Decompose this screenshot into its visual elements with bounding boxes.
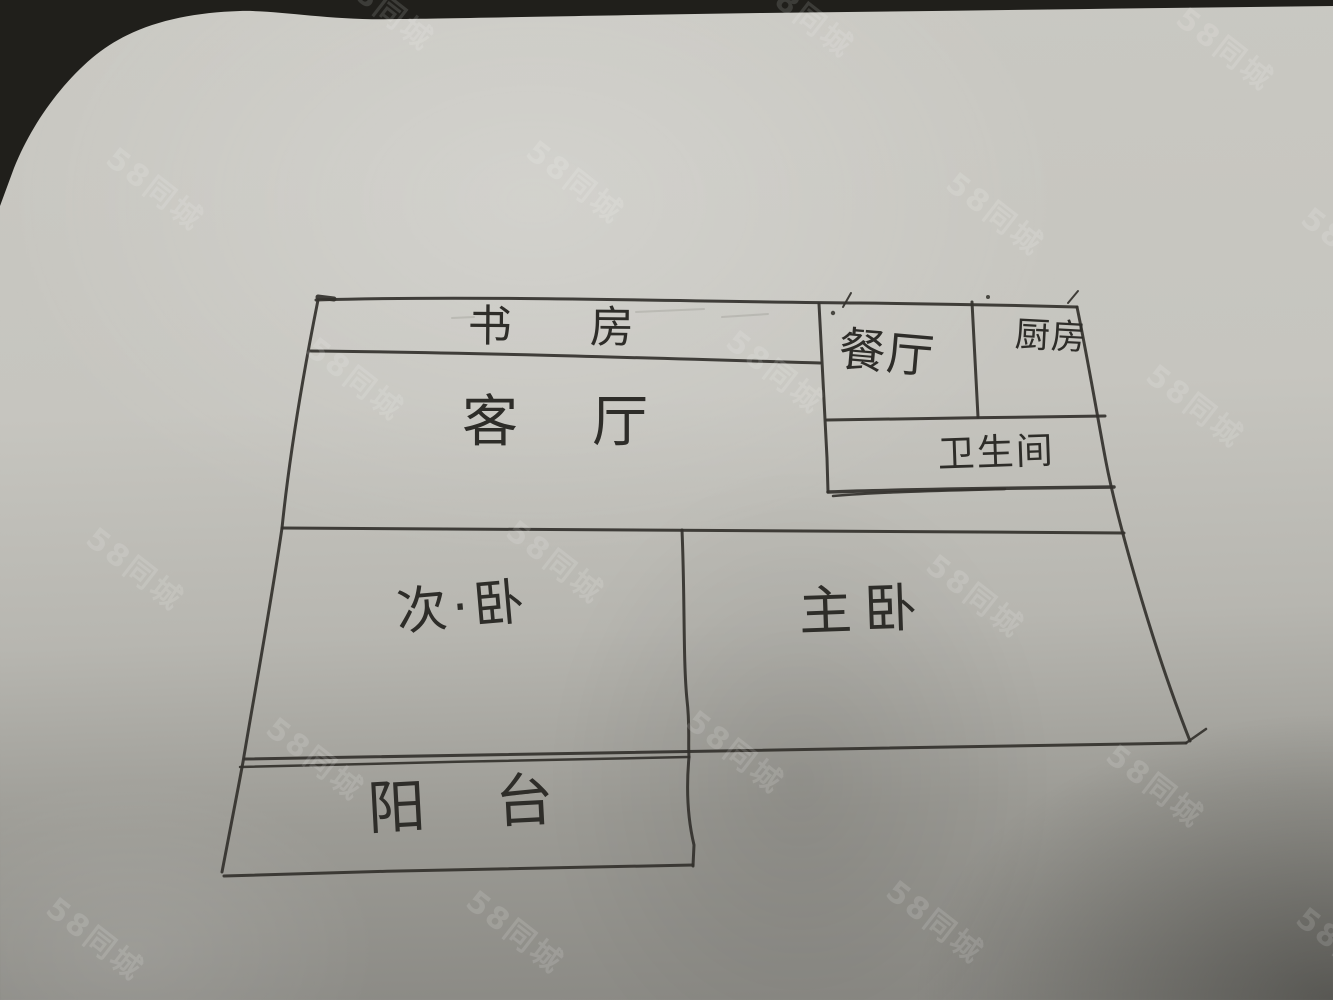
- balcony-bottom-wall: [224, 865, 693, 876]
- pen-tick-top-right: [1068, 291, 1078, 303]
- bedroom-divider: [682, 530, 689, 757]
- dining-left-wall: [819, 304, 828, 492]
- dining-kitchen-divider: [972, 302, 978, 417]
- bedroom-bottom-wall: [245, 743, 1186, 759]
- bleed-mark: [722, 314, 768, 317]
- pen-tick-top-left: [318, 297, 334, 299]
- pen-dot-kitchen: [986, 295, 990, 299]
- photo-dark-edge: [0, 0, 1333, 206]
- room-label-balcony: 阳台: [366, 765, 625, 842]
- room-label-study: 书房: [468, 303, 712, 354]
- pen-dot-dining: [831, 311, 835, 315]
- pen-tick-dining: [843, 293, 851, 307]
- floorplan-photo: 书房 客厅 餐厅 厨房 卫生间 次·卧 主卧 阳台 58同城58同城58同城58…: [0, 0, 1333, 1000]
- floorplan-lines: [0, 0, 1333, 1000]
- room-label-dining-room: 餐厅: [836, 324, 936, 384]
- room-label-secondary-bedroom: 次·卧: [394, 574, 532, 641]
- wall-right: [1077, 307, 1190, 741]
- room-label-kitchen: 厨房: [1014, 316, 1088, 358]
- wall-left: [222, 300, 318, 872]
- room-label-master-bedroom: 主卧: [798, 579, 930, 642]
- balcony-right-wall: [688, 757, 694, 866]
- living-bedroom-divider: [282, 528, 1124, 533]
- room-label-bathroom: 卫生间: [937, 431, 1055, 476]
- bathroom-top-wall: [827, 416, 1105, 420]
- room-label-living-room: 客厅: [462, 392, 722, 454]
